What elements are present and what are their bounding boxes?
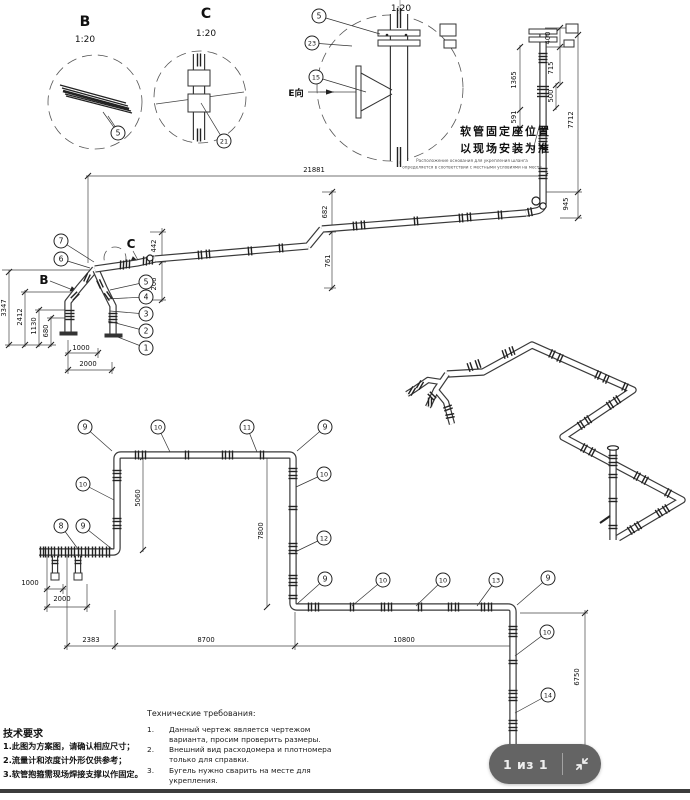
callout-5: 5	[139, 275, 153, 289]
svg-text:13: 13	[492, 576, 500, 584]
hose-mount-note-cn-line2: 以现场安装为准	[460, 141, 551, 155]
drawing-viewer: 2188140071513655005917712945682761442206…	[0, 0, 690, 800]
detail-b-title: B	[80, 14, 91, 30]
callout-15: 15	[309, 70, 323, 84]
svg-text:2: 2	[144, 326, 149, 335]
tech-req-cn-item: 3.软管抱箍需现场焊接支撑以作固定。	[3, 768, 147, 782]
callout-5: 5	[312, 9, 326, 23]
dim-label: 1000	[21, 579, 38, 587]
callout-21: 21	[217, 134, 231, 148]
dim-label: 680	[42, 325, 50, 338]
tech-requirements-ru-title: Технические требования:	[147, 709, 392, 718]
collapse-icon	[574, 756, 590, 772]
svg-text:3: 3	[144, 309, 149, 318]
dim-label: 2412	[16, 308, 24, 325]
callout-9: 9	[318, 572, 332, 586]
dim-label: 3347	[0, 299, 8, 316]
svg-text:4: 4	[144, 292, 149, 301]
callout-1: 1	[139, 341, 153, 355]
piping-drawing-canvas: 2188140071513655005917712945682761442206…	[0, 0, 690, 800]
callout-10: 10	[540, 625, 554, 639]
svg-text:8: 8	[59, 521, 64, 530]
svg-text:10: 10	[543, 628, 551, 636]
callout-12: 12	[317, 531, 331, 545]
callout-9: 9	[318, 420, 332, 434]
callout-2: 2	[139, 324, 153, 338]
svg-text:10: 10	[439, 576, 447, 584]
detail-e-scale: 1:20	[391, 4, 411, 14]
dim-label: 761	[324, 255, 332, 268]
view-mark-b: B	[39, 273, 48, 287]
tech-requirements-cn-title: 技术要求	[3, 729, 147, 740]
svg-text:10: 10	[320, 470, 328, 478]
svg-text:9: 9	[546, 573, 551, 582]
svg-text:9: 9	[83, 422, 88, 431]
callout-10: 10	[436, 573, 450, 587]
callout-23: 23	[305, 36, 319, 50]
svg-text:5: 5	[116, 128, 121, 137]
callout-5: 5	[111, 126, 125, 140]
hose-mount-note-ru-line2: определяется в соответствии с местными у…	[402, 165, 542, 170]
dim-label: 591	[510, 111, 518, 124]
dim-label: 682	[321, 206, 329, 219]
dim-label: 21881	[303, 166, 325, 174]
svg-text:6: 6	[59, 254, 64, 263]
detail-c-title: C	[201, 6, 211, 22]
detail-b-scale: 1:20	[75, 35, 95, 45]
view-direction-e-label: E向	[288, 87, 303, 99]
dim-label: 1000	[72, 344, 89, 352]
dim-label: 8700	[197, 636, 214, 644]
svg-text:7: 7	[59, 236, 64, 245]
callout-10: 10	[76, 477, 90, 491]
svg-text:5: 5	[144, 277, 149, 286]
tech-requirements-ru-list: 1.Данный чертеж является чертежом вариан…	[147, 725, 392, 785]
svg-text:11: 11	[243, 423, 251, 431]
callout-10: 10	[151, 420, 165, 434]
dim-label: 945	[562, 198, 570, 211]
dim-label: 442	[150, 240, 158, 253]
svg-text:9: 9	[323, 422, 328, 431]
callout-14: 14	[541, 688, 555, 702]
view-mark-c: C	[127, 237, 136, 251]
tech-req-cn-item: 2.流量计和浓度计外形仅供参考；	[3, 754, 147, 768]
dim-label: 2000	[53, 595, 70, 603]
dim-label: 6750	[573, 668, 581, 685]
svg-text:9: 9	[323, 574, 328, 583]
svg-text:9: 9	[81, 521, 86, 530]
dim-label: 7712	[567, 111, 575, 128]
svg-text:21: 21	[220, 137, 228, 145]
callout-9: 9	[78, 420, 92, 434]
dim-label: 715	[547, 62, 555, 75]
dim-label: 1130	[30, 317, 38, 334]
tech-req-ru-item: 2.Внешний вид расходомера и плотномера т…	[147, 745, 392, 764]
hose-mount-note-cn-line1: 软管固定座位置	[460, 124, 551, 138]
svg-text:1: 1	[144, 343, 149, 352]
page-indicator: 1 из 1	[489, 757, 562, 772]
dim-label: 10800	[393, 636, 415, 644]
callout-7: 7	[54, 234, 68, 248]
detail-c-scale: 1:20	[196, 29, 216, 39]
callout-10: 10	[376, 573, 390, 587]
callout-4: 4	[139, 290, 153, 304]
tech-req-cn-item: 1.此图为方案图，请确认相应尺寸；	[3, 740, 147, 754]
callout-8: 8	[54, 519, 68, 533]
dim-label: 500	[547, 90, 555, 103]
dim-label: 400	[544, 32, 552, 45]
dim-label: 2383	[82, 636, 99, 644]
fittings-and-flanges	[41, 8, 672, 731]
callout-9: 9	[76, 519, 90, 533]
svg-text:10: 10	[379, 576, 387, 584]
hose-mount-note-ru-line1: Расположение основания для укрепления шл…	[416, 158, 528, 163]
svg-text:10: 10	[79, 480, 87, 488]
dim-label: 1365	[510, 71, 518, 88]
svg-text:10: 10	[154, 423, 162, 431]
callout-10: 10	[317, 467, 331, 481]
svg-text:15: 15	[312, 73, 320, 81]
svg-text:5: 5	[317, 11, 322, 20]
callout-6: 6	[54, 252, 68, 266]
svg-text:14: 14	[544, 691, 552, 699]
callout-3: 3	[139, 307, 153, 321]
collapse-button[interactable]	[563, 744, 601, 784]
tech-requirements-cn-list: 1.此图为方案图，请确认相应尺寸；2.流量计和浓度计外形仅供参考；3.软管抱箍需…	[3, 740, 147, 781]
dim-label: 5060	[134, 489, 142, 506]
callout-13: 13	[489, 573, 503, 587]
callout-9: 9	[541, 571, 555, 585]
dim-label: 7800	[257, 522, 265, 539]
page-indicator-pill: 1 из 1	[489, 744, 601, 784]
callout-11: 11	[240, 420, 254, 434]
dim-label: 2000	[79, 360, 96, 368]
tech-req-ru-item: 3.Бугель нужно сварить на месте для укре…	[147, 766, 392, 785]
svg-text:12: 12	[320, 534, 328, 542]
tech-req-ru-item: 1.Данный чертеж является чертежом вариан…	[147, 725, 392, 744]
svg-text:23: 23	[308, 39, 316, 47]
tech-requirements-ru: Технические требования: 1.Данный чертеж …	[147, 709, 392, 786]
tech-requirements-cn: 技术要求 1.此图为方案图，请确认相应尺寸；2.流量计和浓度计外形仅供参考；3.…	[3, 729, 147, 781]
viewer-bottom-bar	[0, 789, 690, 793]
